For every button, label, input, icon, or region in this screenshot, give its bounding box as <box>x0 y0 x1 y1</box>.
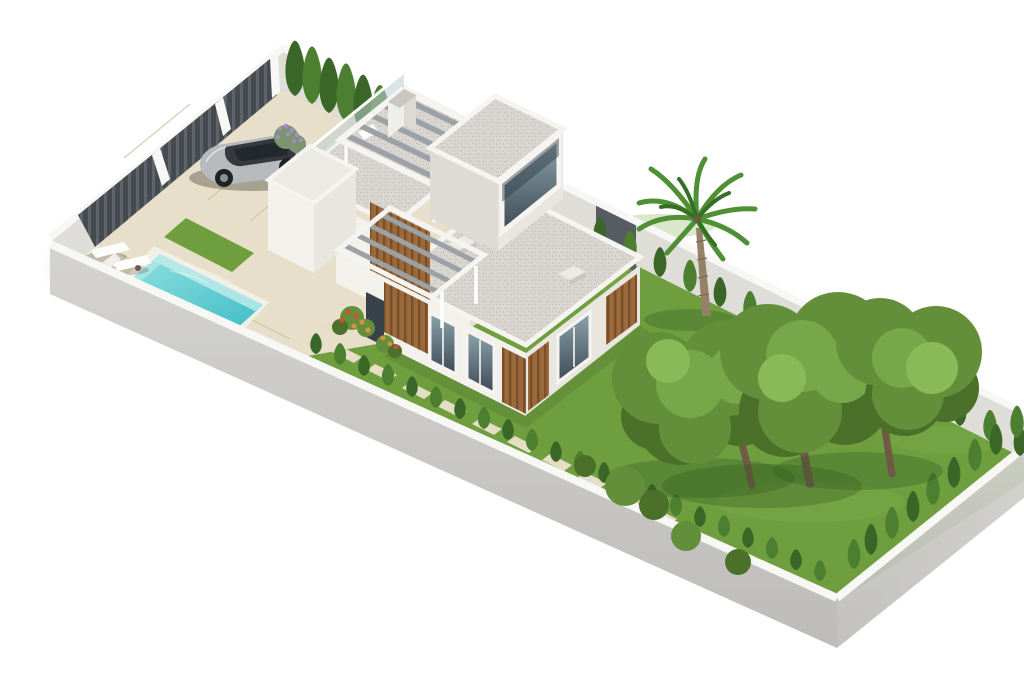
villa-render: Isometric 3D architectural rendering of … <box>40 16 1024 678</box>
render-canvas <box>40 16 1024 678</box>
side-table <box>135 265 141 271</box>
car-wheel-rim <box>220 174 228 182</box>
